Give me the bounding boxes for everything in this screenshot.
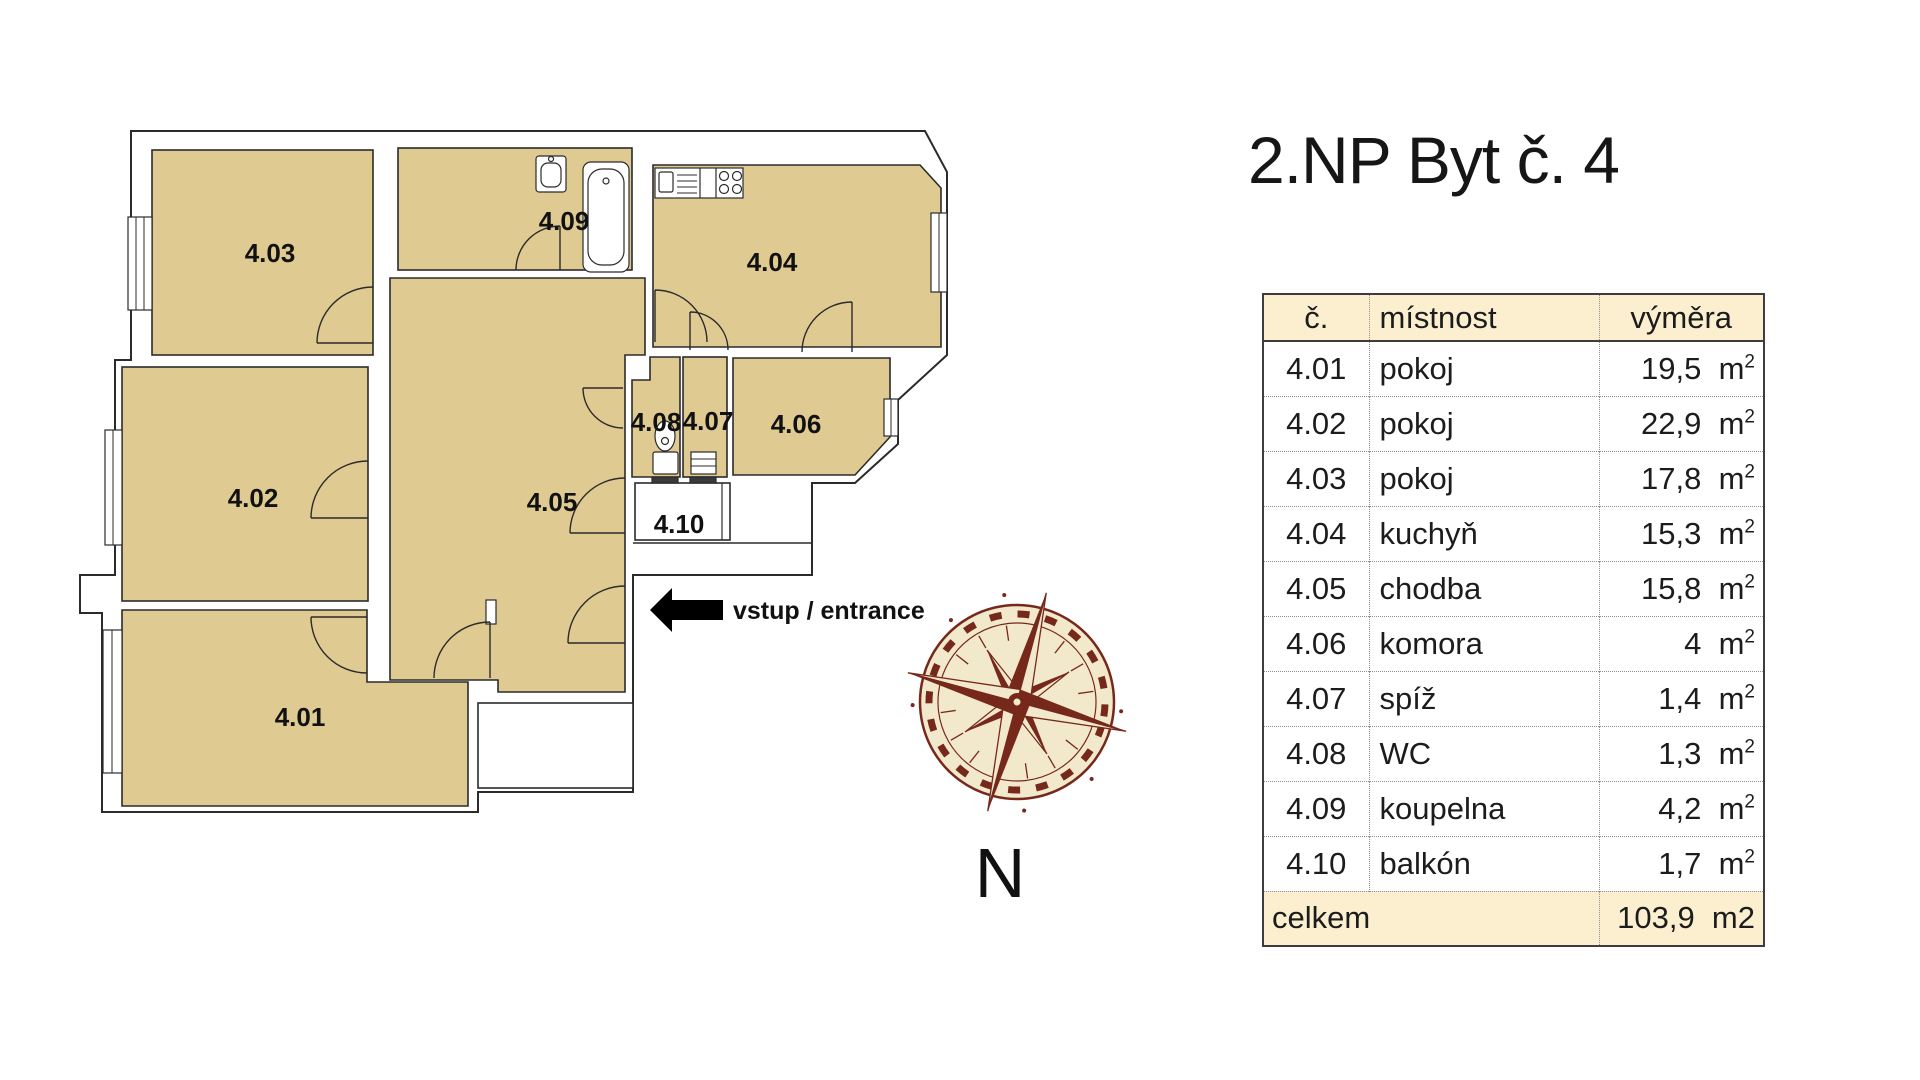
cell-room-area: 19,5 m2 (1599, 341, 1764, 396)
pantry-unit (691, 452, 716, 474)
label-room-4.01: 4.01 (275, 702, 326, 732)
entrance-marker: vstup / entrance (650, 588, 925, 632)
label-room-4.05: 4.05 (527, 487, 578, 517)
table-row: 4.10balkón1,7 m2 (1263, 836, 1764, 891)
cell-room-name: balkón (1369, 836, 1599, 891)
cell-room-number: 4.04 (1263, 506, 1369, 561)
table-header-row: č. místnost výměra (1263, 294, 1764, 341)
threshold-wc (652, 477, 678, 483)
table-row: 4.07spíž1,4 m2 (1263, 671, 1764, 726)
room-4.05 (390, 278, 645, 692)
north-label: N (975, 834, 1026, 912)
entrance-label: vstup / entrance (733, 597, 925, 625)
table-row: 4.04kuchyň15,3 m2 (1263, 506, 1764, 561)
cell-room-name: pokoj (1369, 341, 1599, 396)
footer-total-label: celkem (1263, 891, 1599, 946)
cell-room-name: komora (1369, 616, 1599, 671)
areas-table-container: č. místnost výměra 4.01pokoj19,5 m24.02p… (1262, 293, 1763, 947)
label-room-4.07: 4.07 (683, 406, 734, 436)
entrance-arrow-icon (650, 588, 723, 632)
vestibule-wall (486, 600, 496, 624)
label-room-4.08: 4.08 (631, 407, 682, 437)
table-row: 4.05chodba15,8 m2 (1263, 561, 1764, 616)
page-title: 2.NP Byt č. 4 (1248, 122, 1619, 198)
cell-room-name: chodba (1369, 561, 1599, 616)
cell-room-area: 17,8 m2 (1599, 451, 1764, 506)
cell-room-area: 4 m2 (1599, 616, 1764, 671)
cell-room-name: kuchyň (1369, 506, 1599, 561)
room-areas-table: č. místnost výměra 4.01pokoj19,5 m24.02p… (1262, 293, 1765, 947)
cell-room-name: WC (1369, 726, 1599, 781)
cell-room-number: 4.02 (1263, 396, 1369, 451)
cell-room-name: spíž (1369, 671, 1599, 726)
cell-room-number: 4.09 (1263, 781, 1369, 836)
cell-room-area: 22,9 m2 (1599, 396, 1764, 451)
table-row: 4.06komora4 m2 (1263, 616, 1764, 671)
col-header-room: místnost (1369, 294, 1599, 341)
cell-room-name: pokoj (1369, 451, 1599, 506)
cell-room-number: 4.03 (1263, 451, 1369, 506)
cell-room-number: 4.08 (1263, 726, 1369, 781)
table-footer-row: celkem 103,9 m2 (1263, 891, 1764, 946)
cell-room-area: 15,8 m2 (1599, 561, 1764, 616)
cell-room-area: 15,3 m2 (1599, 506, 1764, 561)
label-room-4.02: 4.02 (228, 483, 279, 513)
cell-room-name: pokoj (1369, 396, 1599, 451)
cell-room-number: 4.07 (1263, 671, 1369, 726)
table-row: 4.02pokoj22,9 m2 (1263, 396, 1764, 451)
cell-room-area: 1,4 m2 (1599, 671, 1764, 726)
label-room-4.03: 4.03 (245, 238, 296, 268)
table-row: 4.01pokoj19,5 m2 (1263, 341, 1764, 396)
label-room-4.04: 4.04 (747, 247, 798, 277)
toilet-tank (653, 452, 678, 474)
cell-room-area: 1,3 m2 (1599, 726, 1764, 781)
cell-room-number: 4.05 (1263, 561, 1369, 616)
table-row: 4.09koupelna4,2 m2 (1263, 781, 1764, 836)
cell-room-area: 1,7 m2 (1599, 836, 1764, 891)
cell-room-number: 4.01 (1263, 341, 1369, 396)
threshold-pantry (690, 477, 716, 483)
cell-room-name: koupelna (1369, 781, 1599, 836)
col-header-number: č. (1263, 294, 1369, 341)
label-room-4.09: 4.09 (539, 206, 590, 236)
col-header-area: výměra (1599, 294, 1764, 341)
floorplan-drawing: 4.01 4.02 4.03 4.04 4.05 4.06 4.07 4.08 … (0, 0, 1250, 1080)
cell-room-number: 4.06 (1263, 616, 1369, 671)
label-room-4.10: 4.10 (654, 509, 705, 539)
table-row: 4.08WC1,3 m2 (1263, 726, 1764, 781)
window-4.03 (128, 217, 152, 310)
footer-total-area: 103,9 m2 (1599, 891, 1764, 946)
floorplan-page: 4.01 4.02 4.03 4.04 4.05 4.06 4.07 4.08 … (0, 0, 1920, 1080)
stair-landing (478, 703, 633, 788)
kitchen-sink (659, 172, 673, 192)
cell-room-number: 4.10 (1263, 836, 1369, 891)
cell-room-area: 4,2 m2 (1599, 781, 1764, 836)
label-room-4.06: 4.06 (771, 409, 822, 439)
table-row: 4.03pokoj17,8 m2 (1263, 451, 1764, 506)
